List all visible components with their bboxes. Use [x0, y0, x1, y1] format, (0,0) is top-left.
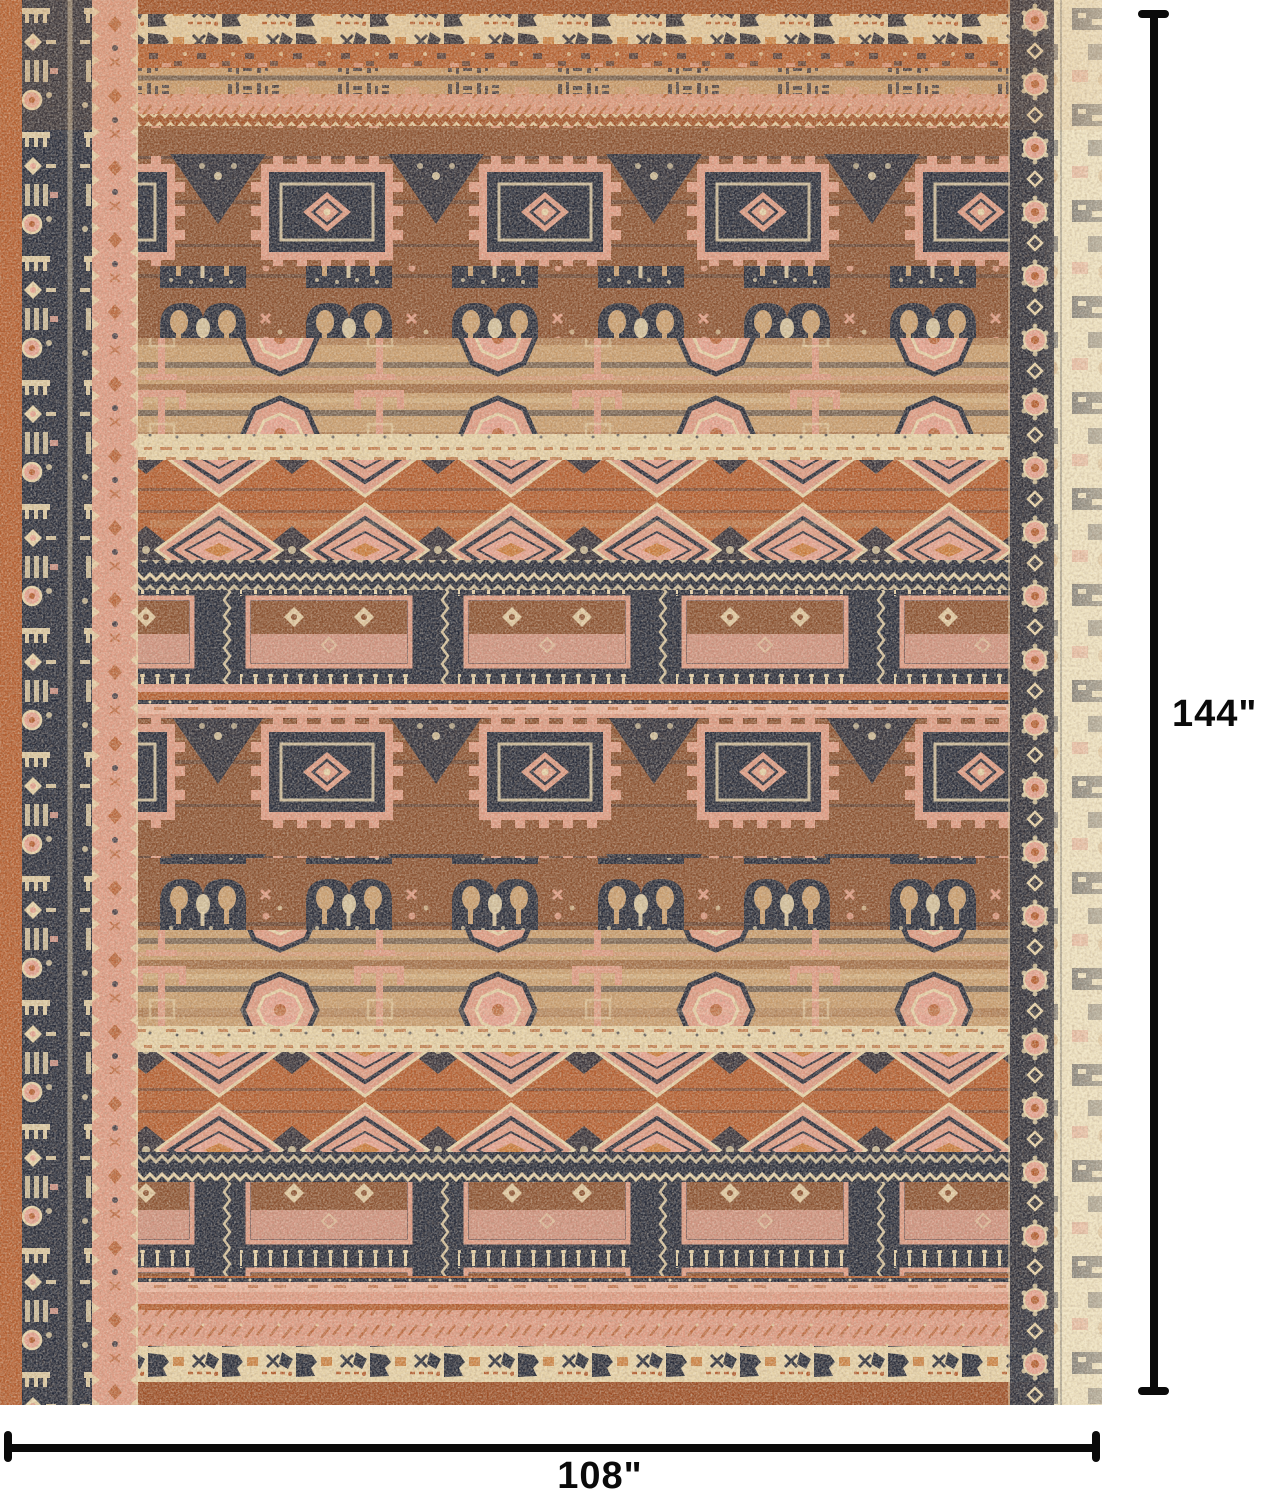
- height-dimension-bottom-cap: [1138, 1387, 1169, 1395]
- height-dimension-line: [1150, 14, 1158, 1390]
- height-dimension-label: 144": [1172, 695, 1257, 733]
- width-dimension-label: 108": [500, 1457, 700, 1495]
- width-dimension-line: [7, 1444, 1097, 1452]
- rug-photo: [0, 0, 1102, 1405]
- product-dimension-image: 144" 108": [0, 0, 1265, 1500]
- width-dimension-right-cap: [1092, 1431, 1100, 1462]
- worn-texture-dark: [0, 0, 1102, 1405]
